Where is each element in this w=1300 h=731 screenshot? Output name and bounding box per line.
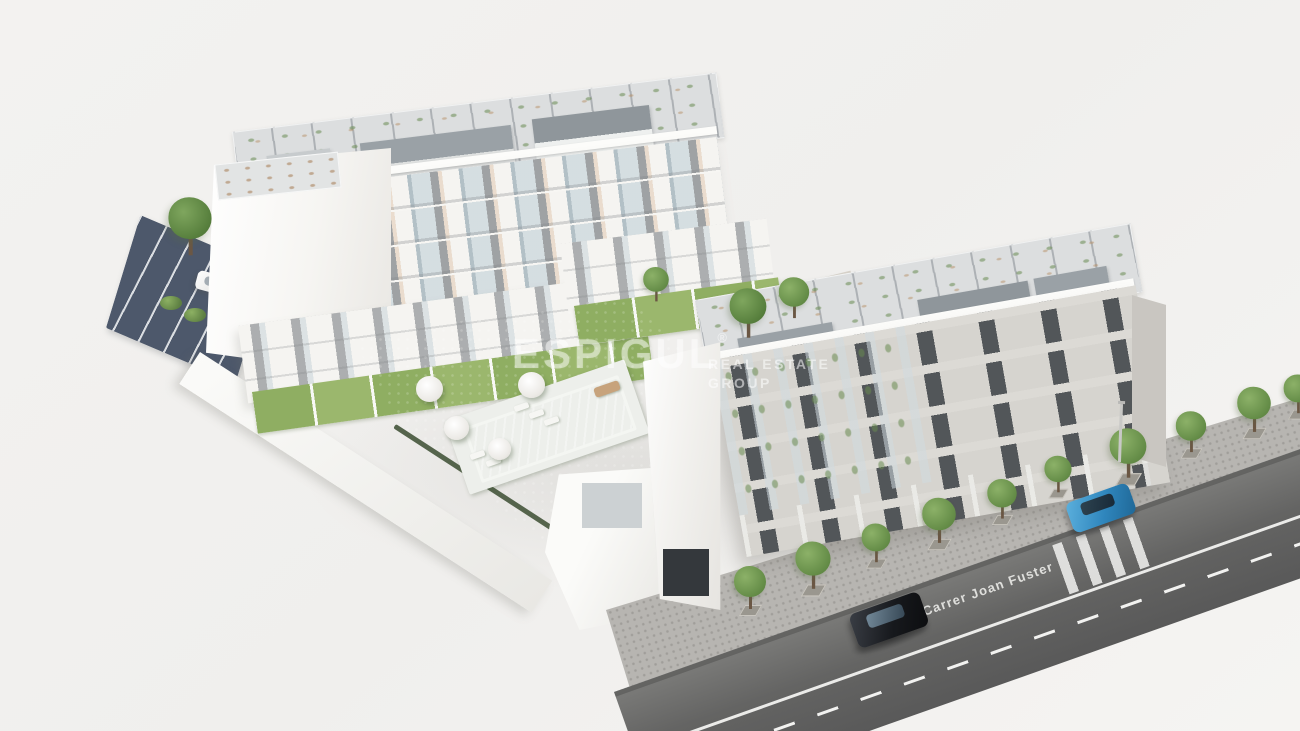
watermark: ESPIGUL® REAL ESTATE GROUP <box>512 330 972 402</box>
blue-car-glass <box>1079 493 1115 517</box>
tree-canopy <box>987 479 1016 508</box>
tree-canopy <box>1237 387 1271 420</box>
watermark-tagline-line2: GROUP <box>708 374 830 393</box>
garage-opening <box>663 549 709 596</box>
street-tree <box>920 498 958 551</box>
tree-trunk <box>812 573 815 588</box>
street-tree <box>732 566 768 616</box>
courtyard-tree <box>166 197 215 265</box>
street-lamp-head <box>1118 401 1125 404</box>
render-scene: Carrer Joan Fuster ESPIGUL® REAL E <box>0 0 1300 731</box>
tree-trunk <box>938 528 941 543</box>
tree-canopy <box>922 498 956 531</box>
watermark-tagline: REAL ESTATE GROUP <box>708 355 830 393</box>
courtyard-tree <box>777 277 811 325</box>
parasol <box>488 438 511 460</box>
tree-trunk <box>875 550 877 563</box>
tree-canopy <box>1284 375 1300 403</box>
tree-canopy <box>734 566 766 597</box>
tree-canopy <box>643 267 669 292</box>
tree-trunk <box>793 305 795 318</box>
street-tree <box>1235 387 1273 440</box>
tree-canopy <box>795 542 830 576</box>
tree-trunk <box>1001 506 1003 519</box>
tree-trunk <box>1297 401 1299 414</box>
tree-trunk <box>1127 462 1130 478</box>
parasol <box>444 416 469 440</box>
registered-mark: ® <box>717 330 727 345</box>
tree-canopy <box>862 524 891 552</box>
tree-trunk <box>1253 417 1256 432</box>
street-tree <box>1043 456 1074 499</box>
parasol <box>416 376 443 402</box>
bush <box>184 308 206 322</box>
street-tree <box>860 524 892 569</box>
tree-canopy <box>1044 456 1071 482</box>
tree-trunk <box>1190 439 1192 452</box>
tree-canopy <box>730 288 767 324</box>
tree-canopy <box>1176 411 1206 440</box>
street-tree <box>1282 375 1300 420</box>
bush <box>160 296 182 310</box>
tree-trunk <box>655 290 657 301</box>
tree-canopy <box>1110 428 1147 464</box>
watermark-brand: ESPIGUL® <box>512 330 727 377</box>
tree-canopy <box>779 277 809 306</box>
street-tree <box>793 542 833 597</box>
tree-trunk <box>749 595 752 609</box>
street-tree <box>1174 411 1208 459</box>
watermark-tagline-line1: REAL ESTATE <box>708 355 830 374</box>
street-tree <box>1107 428 1148 486</box>
street-tree <box>985 479 1018 525</box>
low-building-patio <box>582 483 642 528</box>
courtyard-tree <box>642 267 671 307</box>
tree-trunk <box>1057 480 1059 492</box>
black-car-glass <box>865 603 905 629</box>
tree-canopy <box>168 197 211 239</box>
tree-trunk <box>189 236 192 255</box>
